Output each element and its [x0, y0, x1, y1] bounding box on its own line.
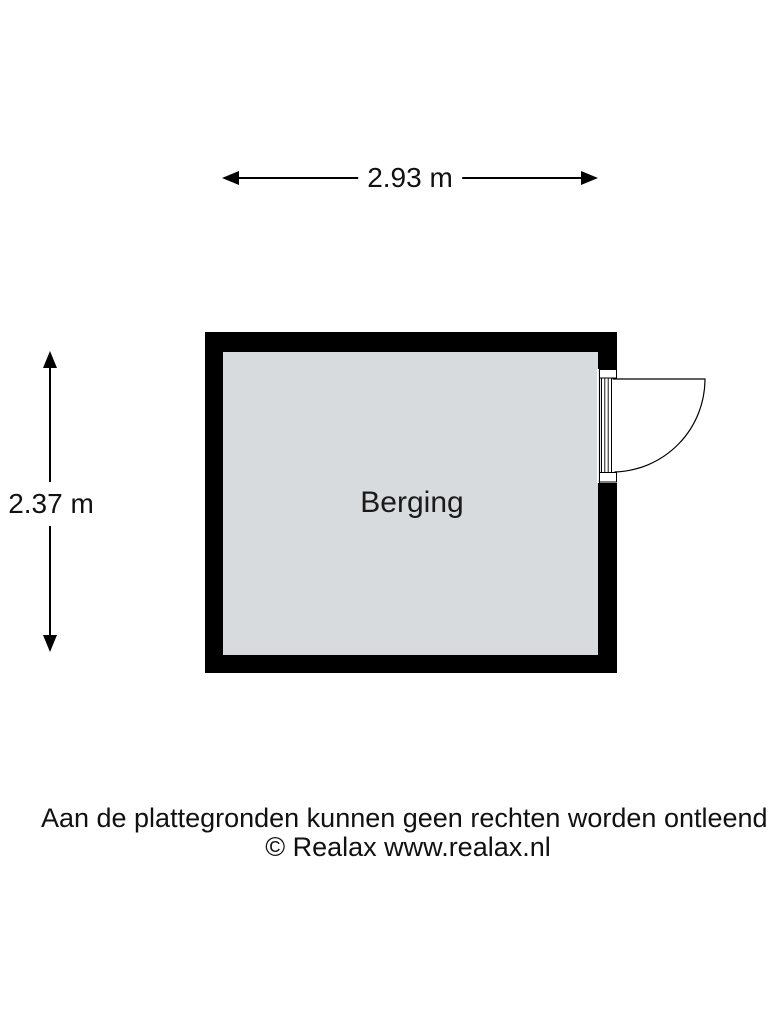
door: [590, 355, 720, 490]
door-jamb-top: [600, 370, 617, 379]
footer: Aan de plattegronden kunnen geen rechten…: [41, 804, 768, 862]
copyright-text: © Realax www.realax.nl: [41, 833, 768, 862]
width-dimension-label: 2.93 m: [358, 162, 462, 194]
door-jamb-bottom: [600, 473, 617, 483]
door-panel: [602, 378, 612, 473]
disclaimer-text: Aan de plattegronden kunnen geen rechten…: [41, 804, 768, 833]
height-dimension-label: 2.37 m: [6, 482, 96, 526]
floorplan-canvas: 2.93 m 2.37 m Berging Aan de plattegrond…: [0, 0, 768, 1024]
door-swing-arc: [613, 379, 706, 472]
arrow-down-icon: [43, 635, 57, 652]
arrow-up-icon: [43, 351, 57, 368]
arrow-left-icon: [222, 171, 239, 185]
room-label: Berging: [360, 486, 463, 520]
arrow-right-icon: [581, 171, 598, 185]
